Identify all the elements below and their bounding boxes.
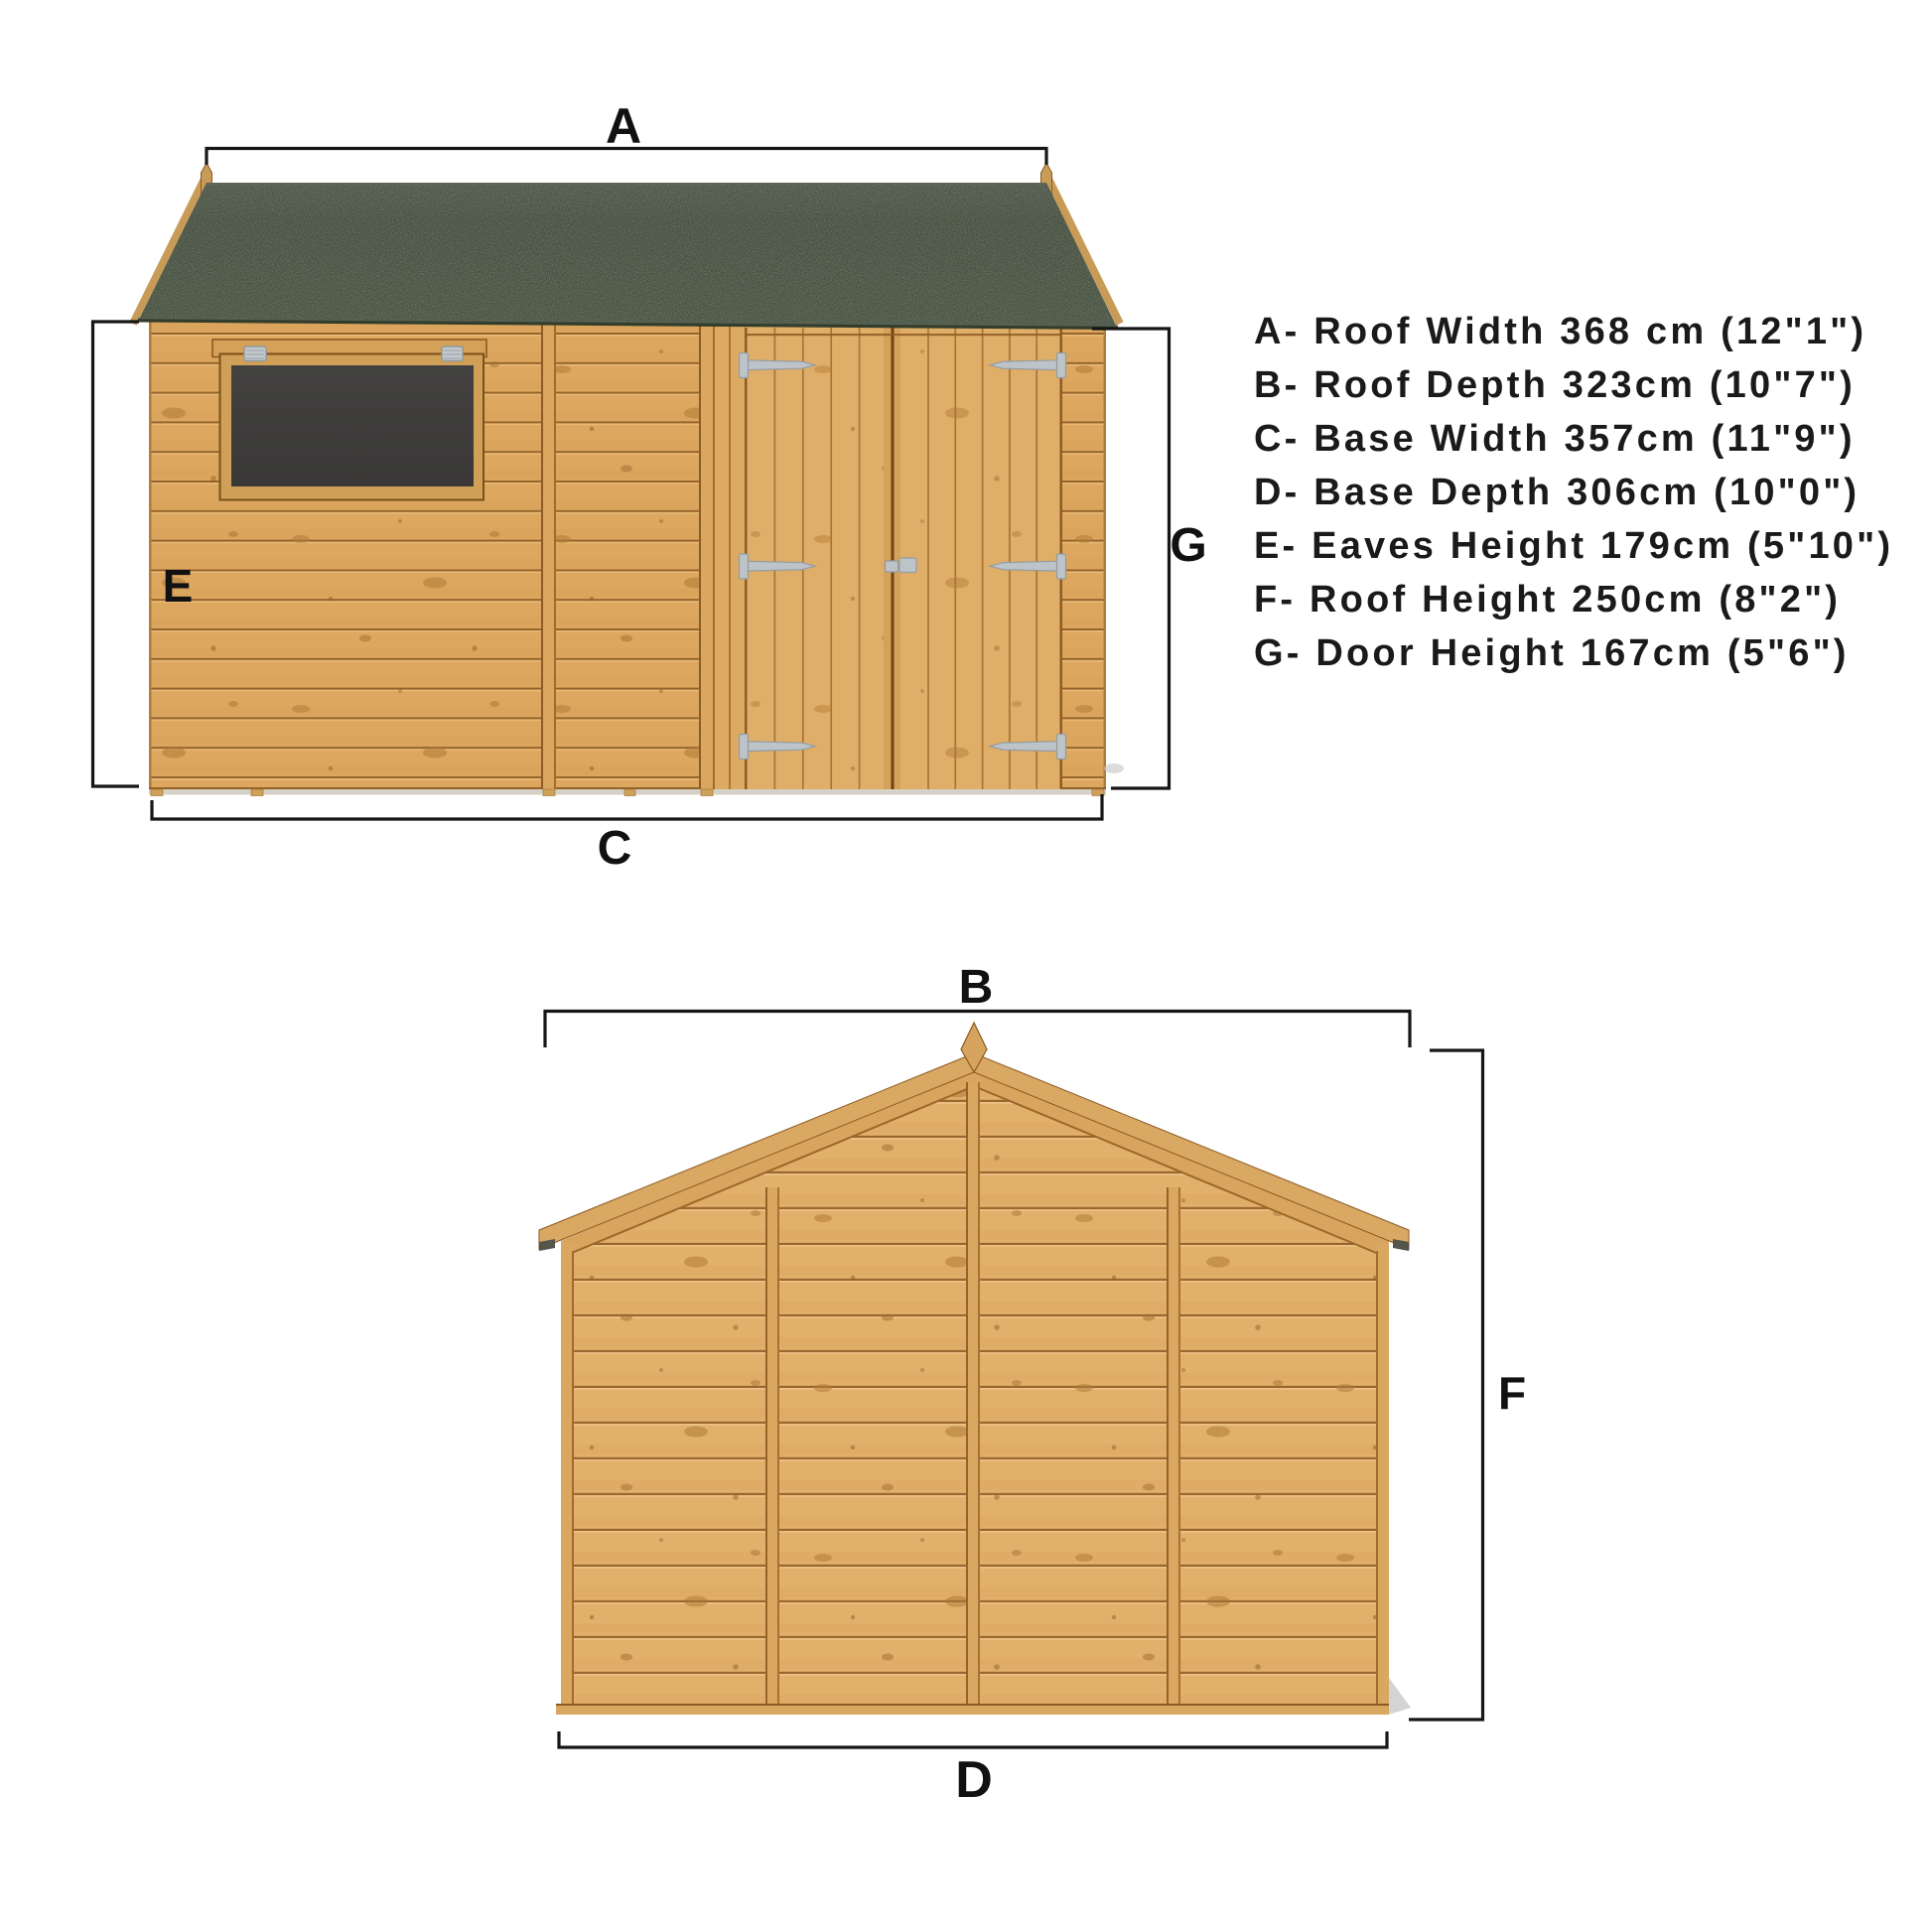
svg-text:D: D: [955, 1751, 993, 1809]
svg-text:G: G: [1170, 519, 1206, 572]
svg-text:B: B: [959, 961, 994, 1014]
svg-text:A: A: [606, 98, 641, 154]
svg-text:F: F: [1498, 1367, 1526, 1419]
svg-text:C: C: [598, 822, 632, 875]
svg-text:E- Eaves Height 179cm (5"10"): E- Eaves Height 179cm (5"10"): [1254, 525, 1893, 567]
svg-text:E: E: [163, 560, 194, 612]
svg-text:C- Base Width 357cm (11"9"): C- Base Width 357cm (11"9"): [1254, 418, 1856, 460]
svg-text:A- Roof Width 368 cm (12"1"): A- Roof Width 368 cm (12"1"): [1254, 311, 1866, 352]
svg-text:G- Door Height 167cm (5"6"): G- Door Height 167cm (5"6"): [1254, 632, 1850, 674]
svg-text:B- Roof Depth 323cm (10"7"): B- Roof Depth 323cm (10"7"): [1254, 364, 1856, 406]
svg-text:D- Base Depth 306cm (10"0"): D- Base Depth 306cm (10"0"): [1254, 472, 1860, 513]
svg-text:F- Roof Height 250cm (8"2"): F- Roof Height 250cm (8"2"): [1254, 579, 1841, 621]
